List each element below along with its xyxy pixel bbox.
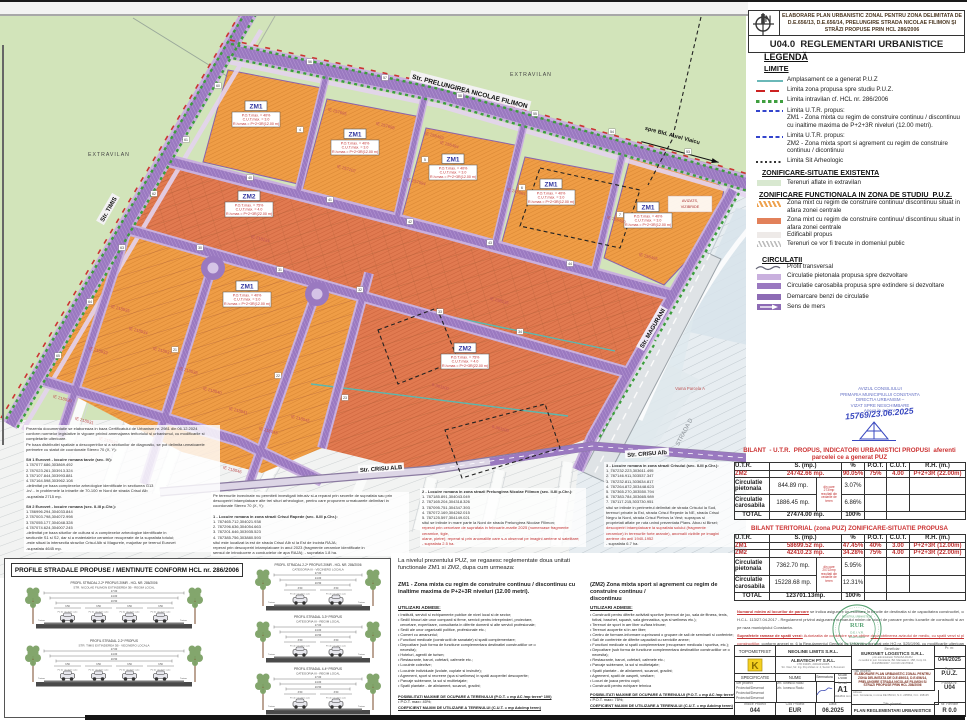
svg-text:IE 257695: IE 257695 [328,107,348,117]
svg-text:REGISTRUL URBANISTILOR: REGISTRUL URBANISTILOR [842,615,873,618]
svg-text:40: 40 [248,176,252,180]
svg-text:4: 4 [299,128,301,132]
svg-text:Trotuar: Trotuar [358,705,365,708]
svg-text:10.50: 10.50 [315,685,322,689]
svg-text:34: 34 [518,330,522,334]
svg-text:R.h.max.= P+2+3R(12.00 m): R.h.max.= P+2+3R(12.00 m) [332,150,378,154]
svg-text:Vama Parcela A: Vama Parcela A [675,386,705,391]
svg-text:IE 218538: IE 218538 [179,366,199,376]
svg-text:53: 53 [686,150,690,154]
svg-text:3.50: 3.50 [298,587,303,590]
svg-text:IE 218134: IE 218134 [251,234,271,244]
svg-text:9-301100: 9-301100 [431,382,450,392]
svg-text:ZM1: ZM1 [250,104,263,111]
svg-text:3.50: 3.50 [158,663,163,666]
svg-text:3.50: 3.50 [158,605,163,608]
svg-text:ZM1: ZM1 [642,205,655,212]
svg-text:17.00: 17.00 [315,571,322,575]
svg-text:ZM2: ZM2 [243,194,256,201]
svg-text:R.h.max.= P+2+3R(12.00 m): R.h.max.= P+2+3R(12.00 m) [224,302,270,306]
svg-text:IE 218546: IE 218546 [223,465,243,475]
svg-text:R.h.max.= P+2+3R(22.00 m): R.h.max.= P+2+3R(22.00 m) [226,212,272,216]
svg-text:63: 63 [120,246,124,250]
svg-text:31: 31 [278,268,282,272]
svg-text:6: 6 [521,186,523,190]
svg-text:17.00: 17.00 [111,647,118,651]
svg-text:PROFIL STRADAL 2-2* PROPUS: PROFIL STRADAL 2-2* PROPUS [90,639,138,643]
svg-text:CATEGORIA III - REGIM LOCAL: CATEGORIA III - REGIM LOCAL [296,620,340,624]
svg-text:PROFIL STRADAL 4-4* PROPUS: PROFIL STRADAL 4-4* PROPUS [294,667,342,671]
svg-text:14.00: 14.00 [111,652,118,656]
svg-text:3.50: 3.50 [334,587,339,590]
svg-text:arhitect urbanist: arhitect urbanist [849,636,865,639]
svg-text:STR. NICOLAE FILIMON EXTINDERE: STR. NICOLAE FILIMON EXTINDEREA 3B - REG… [73,586,155,590]
svg-text:14.00: 14.00 [315,628,322,632]
svg-text:10.50: 10.50 [111,599,118,603]
svg-text:ZM1: ZM1 [545,182,558,189]
svg-text:IE 218530: IE 218530 [53,394,73,404]
svg-text:21: 21 [173,348,177,352]
svg-text:IE 218534: IE 218534 [129,326,149,336]
svg-text:17.00: 17.00 [315,623,322,627]
svg-text:Str. MAGURANI: Str. MAGURANI [640,308,668,350]
svg-text:62: 62 [152,192,156,196]
svg-text:IE 218543: IE 218543 [259,426,279,436]
svg-text:CATEGORIA III - VECINERO LOCAL: CATEGORIA III - VECINERO LOCALA [292,568,344,572]
svg-text:IE 218537: IE 218537 [153,346,173,356]
svg-text:IE 257594: IE 257594 [407,177,427,187]
svg-text:14.00: 14.00 [315,680,322,684]
svg-text:60: 60 [216,84,220,88]
svg-text:43: 43 [488,241,492,245]
svg-text:10.50: 10.50 [111,657,118,661]
svg-text:CATEGORIA III - REGIM LOCAL: CATEGORIA III - REGIM LOCAL [296,672,340,676]
svg-text:D.E.I. V.R.: D.E.I. V.R. [850,631,864,635]
svg-text:AVIZATS,: AVIZATS, [682,199,698,203]
svg-text:7: 7 [619,213,621,217]
svg-text:3.50: 3.50 [96,605,101,608]
svg-text:30: 30 [198,246,202,250]
svg-text:PROFIL STRADAL 2-2* PROPUS 20M: PROFIL STRADAL 2-2* PROPUS 20MR - HCL NR… [71,581,158,585]
svg-text:Trotuar: Trotuar [180,677,187,680]
svg-text:3.50: 3.50 [298,691,303,694]
svg-text:EXTRAVILAN: EXTRAVILAN [510,72,552,78]
svg-text:RUR: RUR [850,622,864,629]
svg-text:Trotuar: Trotuar [38,619,45,622]
svg-text:55: 55 [533,112,537,116]
svg-text:3.50: 3.50 [96,663,101,666]
svg-text:R.h.max.= P+2+3R(12.00 m): R.h.max.= P+2+3R(12.00 m) [233,122,279,126]
svg-text:3.50: 3.50 [65,605,70,608]
svg-text:Trotuar: Trotuar [38,677,45,680]
svg-text:32: 32 [358,288,362,292]
svg-text:44: 44 [568,262,572,266]
svg-text:17.00: 17.00 [315,675,322,679]
svg-text:STRADA D: STRADA D [675,417,695,447]
svg-text:Trotuar: Trotuar [268,705,275,708]
svg-text:Trotuar: Trotuar [358,653,365,656]
svg-text:spre Bld. Aurel Vlaicu: spre Bld. Aurel Vlaicu [644,126,700,146]
svg-text:57: 57 [383,76,387,80]
svg-text:5: 5 [424,158,426,162]
svg-text:Trotuar: Trotuar [180,619,187,622]
svg-text:54: 54 [610,130,614,134]
svg-text:23: 23 [343,396,347,400]
svg-text:41: 41 [328,198,332,202]
svg-text:Trotuar: Trotuar [268,601,275,604]
svg-text:IE 218541: IE 218541 [229,406,249,416]
svg-text:VIZIBRIDE: VIZIBRIDE [681,205,700,209]
svg-text:R.h.max.= P+2+3R(12.00 m): R.h.max.= P+2+3R(12.00 m) [528,200,574,204]
svg-text:3.50: 3.50 [127,605,132,608]
svg-text:PROFIL STRADAL 2-2* PROPUS 20M: PROFIL STRADAL 2-2* PROPUS 20MR - HCL NR… [275,563,362,567]
svg-text:65: 65 [56,354,60,358]
svg-text:K: K [751,661,759,672]
svg-text:58: 58 [458,94,462,98]
svg-text:IE 256494: IE 256494 [440,140,460,150]
svg-text:Str. PRELUNGIREA NICOLAE FILIM: Str. PRELUNGIREA NICOLAE FILIMON [411,74,528,111]
svg-text:IE 257698: IE 257698 [376,121,396,131]
svg-text:IE 218535: IE 218535 [111,304,131,314]
svg-text:Trotuar: Trotuar [268,653,275,656]
svg-text:IE 218545: IE 218545 [291,414,311,424]
svg-text:61: 61 [184,138,188,142]
svg-text:3.50: 3.50 [65,663,70,666]
svg-text:10.50: 10.50 [315,581,322,585]
svg-text:33: 33 [438,310,442,314]
svg-text:ZM2: ZM2 [459,346,472,353]
svg-text:IE 257102: IE 257102 [337,164,357,174]
svg-text:ZM1: ZM1 [349,132,362,139]
svg-text:R.h.max.= P+2+3R(12.00 m): R.h.max.= P+2+3R(12.00 m) [430,175,476,179]
svg-text:IE 218533: IE 218533 [89,346,109,356]
svg-text:R.h.max.= P+2+3R(22.00 m): R.h.max.= P+2+3R(22.00 m) [442,364,488,368]
svg-text:3.50: 3.50 [334,639,339,642]
svg-text:17.00: 17.00 [111,589,118,593]
svg-text:9-301100: 9-301100 [491,424,510,434]
svg-text:10.50: 10.50 [315,633,322,637]
svg-text:3.50: 3.50 [334,691,339,694]
svg-text:3.50: 3.50 [127,663,132,666]
svg-text:R.h.max.= P+2+3R(12.00 m): R.h.max.= P+2+3R(12.00 m) [625,223,671,227]
svg-text:PROFIL STRADAL 3-3* PROPUS: PROFIL STRADAL 3-3* PROPUS [294,615,342,619]
svg-text:14.00: 14.00 [315,576,322,580]
svg-text:STR. TIMIS EXTINDEREA 3B - VEC: STR. TIMIS EXTINDEREA 3B - VECINERO LOCA… [79,644,150,648]
svg-text:N: N [765,14,772,24]
svg-text:64: 64 [88,300,92,304]
svg-text:ZM1: ZM1 [241,284,254,291]
svg-text:56: 56 [308,60,312,64]
svg-text:14.00: 14.00 [111,594,118,598]
svg-text:IE 256495: IE 256495 [639,252,659,262]
svg-text:22: 22 [276,374,280,378]
svg-text:EXTRAVILAN: EXTRAVILAN [88,152,130,158]
svg-text:IE 218540: IE 218540 [203,386,223,396]
svg-text:IE 298135: IE 298135 [490,296,510,306]
svg-text:ZM1: ZM1 [447,157,460,164]
svg-text:Trotuar: Trotuar [358,601,365,604]
svg-text:42: 42 [408,220,412,224]
svg-text:3.50: 3.50 [298,639,303,642]
